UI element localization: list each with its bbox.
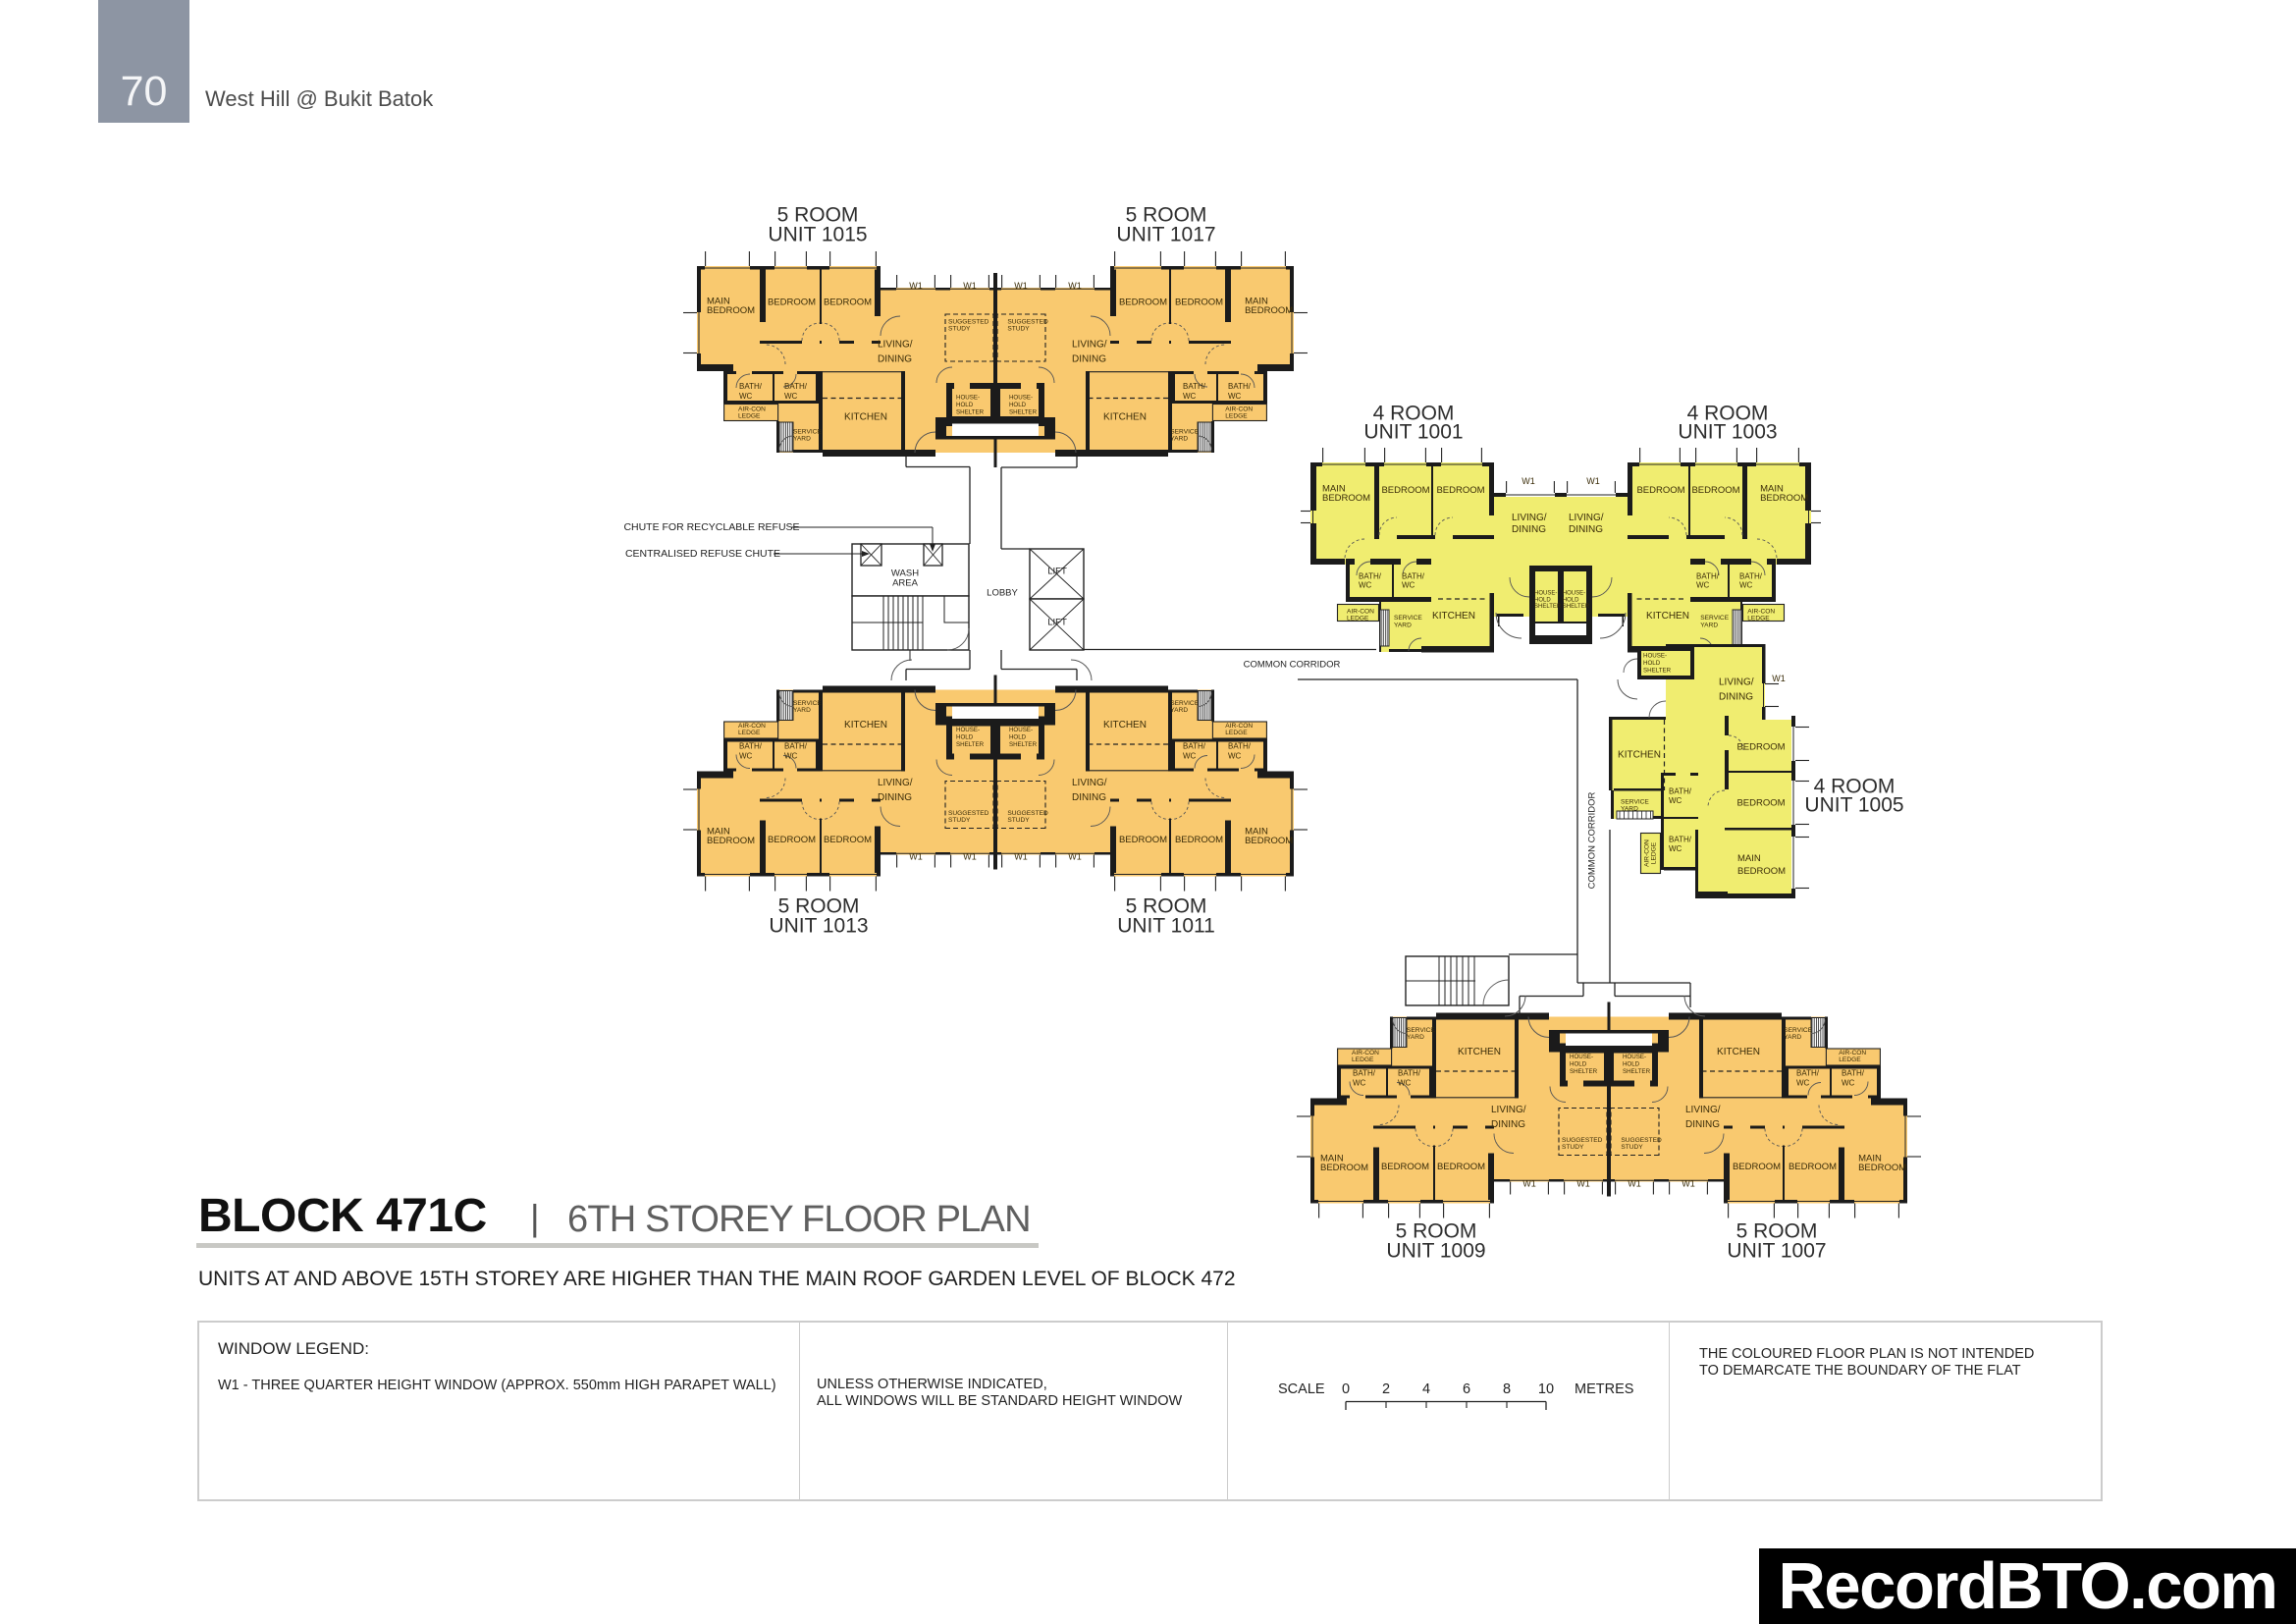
svg-text:WC: WC xyxy=(739,392,753,401)
svg-text:HOUSE-: HOUSE- xyxy=(1643,653,1667,660)
svg-text:AREA: AREA xyxy=(892,578,919,589)
svg-text:HOLD: HOLD xyxy=(1563,597,1579,603)
svg-text:BEDROOM: BEDROOM xyxy=(1381,485,1429,496)
svg-text:BEDROOM: BEDROOM xyxy=(1858,1163,1906,1173)
svg-text:WC: WC xyxy=(1669,844,1682,853)
svg-text:YARD: YARD xyxy=(793,707,811,714)
svg-text:W1: W1 xyxy=(1522,476,1535,486)
svg-text:SUGGESTED: SUGGESTED xyxy=(1562,1137,1603,1144)
svg-text:AIR-CON: AIR-CON xyxy=(1225,406,1253,413)
svg-text:W1: W1 xyxy=(1522,1179,1536,1189)
svg-text:W1: W1 xyxy=(1014,852,1028,862)
svg-text:WC: WC xyxy=(784,392,798,401)
svg-text:LEDGE: LEDGE xyxy=(1225,730,1248,736)
svg-text:DINING: DINING xyxy=(1072,792,1106,803)
svg-text:AIR-CON: AIR-CON xyxy=(1839,1050,1866,1056)
svg-text:BEDROOM: BEDROOM xyxy=(1381,1162,1429,1172)
svg-text:BEDROOM: BEDROOM xyxy=(768,298,816,308)
svg-text:SERVICE: SERVICE xyxy=(1621,799,1649,806)
svg-text:BEDROOM: BEDROOM xyxy=(824,298,872,308)
svg-text:WC: WC xyxy=(1398,1079,1412,1088)
svg-text:W1: W1 xyxy=(1014,281,1028,291)
svg-text:BEDROOM: BEDROOM xyxy=(1175,835,1223,845)
svg-text:WC: WC xyxy=(739,752,753,761)
svg-text:LEDGE: LEDGE xyxy=(1347,616,1369,623)
svg-text:UNIT 1015: UNIT 1015 xyxy=(768,224,867,246)
svg-text:KITCHEN: KITCHEN xyxy=(1717,1047,1760,1057)
svg-text:AIR-CON: AIR-CON xyxy=(1644,839,1651,867)
svg-text:SERVICE: SERVICE xyxy=(793,700,822,707)
svg-text:SUGGESTED: SUGGESTED xyxy=(1007,319,1048,326)
svg-text:SERVICE: SERVICE xyxy=(1170,429,1199,436)
svg-text:BEDROOM: BEDROOM xyxy=(1320,1163,1368,1173)
svg-text:BATH/: BATH/ xyxy=(1696,572,1720,581)
svg-text:LIVING/: LIVING/ xyxy=(1569,513,1604,523)
svg-text:LEDGE: LEDGE xyxy=(738,413,761,420)
svg-text:WC: WC xyxy=(1669,796,1682,805)
svg-text:BATH/: BATH/ xyxy=(1359,572,1382,581)
svg-text:0: 0 xyxy=(1342,1381,1350,1397)
svg-text:BATH/: BATH/ xyxy=(1796,1069,1820,1078)
svg-text:HOUSE-: HOUSE- xyxy=(1623,1054,1646,1060)
svg-text:BEDROOM: BEDROOM xyxy=(768,835,816,845)
svg-text:DINING: DINING xyxy=(1685,1119,1720,1130)
svg-text:BEDROOM: BEDROOM xyxy=(1245,836,1293,846)
svg-text:BATH/: BATH/ xyxy=(1353,1069,1376,1078)
svg-text:BEDROOM: BEDROOM xyxy=(1437,1162,1485,1172)
svg-text:HOLD: HOLD xyxy=(1534,597,1551,603)
svg-text:BATH/: BATH/ xyxy=(1669,836,1692,844)
svg-text:DINING: DINING xyxy=(1491,1119,1525,1130)
svg-text:WC: WC xyxy=(784,752,798,761)
svg-text:LIFT: LIFT xyxy=(1047,618,1067,628)
svg-text:LIVING/: LIVING/ xyxy=(1072,340,1107,351)
svg-text:SERVICE: SERVICE xyxy=(793,429,822,436)
svg-text:CHUTE FOR RECYCLABLE REFUSE: CHUTE FOR RECYCLABLE REFUSE xyxy=(623,521,799,533)
svg-text:YARD: YARD xyxy=(1170,436,1188,443)
svg-text:MAIN: MAIN xyxy=(1737,853,1761,864)
svg-text:W1: W1 xyxy=(1682,1179,1695,1189)
svg-text:HOLD: HOLD xyxy=(956,734,974,741)
svg-text:BATH/: BATH/ xyxy=(1842,1069,1865,1078)
svg-text:LEDGE: LEDGE xyxy=(738,730,761,736)
svg-text:W1: W1 xyxy=(963,852,977,862)
svg-text:WC: WC xyxy=(1696,581,1710,590)
svg-text:WC: WC xyxy=(1739,581,1753,590)
svg-text:CENTRALISED REFUSE CHUTE: CENTRALISED REFUSE CHUTE xyxy=(625,548,780,560)
svg-text:UNIT 1003: UNIT 1003 xyxy=(1678,421,1777,444)
svg-text:W1: W1 xyxy=(1068,281,1082,291)
svg-text:BEDROOM: BEDROOM xyxy=(707,836,755,846)
svg-text:BATH/: BATH/ xyxy=(1398,1069,1421,1078)
svg-text:W1: W1 xyxy=(1628,1179,1641,1189)
svg-text:AIR-CON: AIR-CON xyxy=(738,406,766,413)
svg-text:W1: W1 xyxy=(1068,852,1082,862)
svg-text:LOBBY: LOBBY xyxy=(987,588,1018,599)
svg-text:STUDY: STUDY xyxy=(948,326,971,333)
svg-text:HOUSE-: HOUSE- xyxy=(1563,591,1585,597)
svg-text:YARD: YARD xyxy=(793,436,811,443)
svg-text:WC: WC xyxy=(1402,581,1415,590)
svg-text:8: 8 xyxy=(1503,1381,1511,1397)
svg-text:AIR-CON: AIR-CON xyxy=(1347,609,1374,616)
svg-text:10: 10 xyxy=(1538,1381,1554,1397)
svg-text:6: 6 xyxy=(1463,1381,1470,1397)
svg-text:BEDROOM: BEDROOM xyxy=(1691,485,1739,496)
svg-text:SUGGESTED: SUGGESTED xyxy=(1621,1137,1662,1144)
svg-text:BEDROOM: BEDROOM xyxy=(707,305,755,316)
svg-text:LEDGE: LEDGE xyxy=(1839,1056,1861,1063)
svg-text:BATH/: BATH/ xyxy=(1739,572,1763,581)
svg-text:KITCHEN: KITCHEN xyxy=(1618,750,1661,761)
svg-text:DINING: DINING xyxy=(1569,524,1603,535)
svg-text:HOUSE-: HOUSE- xyxy=(1009,727,1033,733)
svg-text:SERVICE: SERVICE xyxy=(1170,700,1199,707)
svg-text:WC: WC xyxy=(1183,752,1197,761)
svg-text:STUDY: STUDY xyxy=(1007,817,1030,824)
svg-text:LIVING/: LIVING/ xyxy=(878,340,913,351)
svg-text:BATH/: BATH/ xyxy=(1183,742,1206,751)
svg-text:W1: W1 xyxy=(1772,674,1786,683)
svg-text:LIVING/: LIVING/ xyxy=(1719,677,1754,688)
svg-text:BEDROOM: BEDROOM xyxy=(1436,485,1484,496)
svg-text:SUGGESTED: SUGGESTED xyxy=(948,319,989,326)
svg-text:SHELTER: SHELTER xyxy=(1009,741,1038,748)
svg-text:AIR-CON: AIR-CON xyxy=(738,723,766,730)
svg-text:W1: W1 xyxy=(1576,1179,1590,1189)
svg-text:KITCHEN: KITCHEN xyxy=(1432,611,1475,622)
svg-text:BEDROOM: BEDROOM xyxy=(1636,485,1684,496)
svg-text:SERVICE: SERVICE xyxy=(1784,1027,1812,1034)
svg-text:BATH/: BATH/ xyxy=(1402,572,1425,581)
svg-text:LIFT: LIFT xyxy=(1047,567,1067,577)
svg-text:KITCHEN: KITCHEN xyxy=(1103,720,1147,731)
svg-text:KITCHEN: KITCHEN xyxy=(1458,1047,1501,1057)
svg-text:WC: WC xyxy=(1228,392,1242,401)
svg-text:BATH/: BATH/ xyxy=(739,382,763,391)
svg-text:BATH/: BATH/ xyxy=(739,742,763,751)
svg-text:BEDROOM: BEDROOM xyxy=(1322,493,1370,504)
svg-text:W1: W1 xyxy=(963,281,977,291)
svg-text:W1: W1 xyxy=(909,852,923,862)
svg-text:HOLD: HOLD xyxy=(1570,1061,1587,1068)
svg-text:KITCHEN: KITCHEN xyxy=(1646,611,1689,622)
svg-text:LEDGE: LEDGE xyxy=(1225,413,1248,420)
svg-text:AIR-CON: AIR-CON xyxy=(1352,1050,1379,1056)
svg-text:BEDROOM: BEDROOM xyxy=(1789,1162,1837,1172)
svg-text:YARD: YARD xyxy=(1621,806,1638,813)
svg-text:BEDROOM: BEDROOM xyxy=(1119,835,1167,845)
svg-text:WC: WC xyxy=(1183,392,1197,401)
svg-text:LIVING/: LIVING/ xyxy=(1685,1105,1721,1115)
svg-text:4: 4 xyxy=(1422,1381,1430,1397)
svg-text:STUDY: STUDY xyxy=(948,817,971,824)
svg-text:HOUSE-: HOUSE- xyxy=(1570,1054,1593,1060)
svg-text:LEDGE: LEDGE xyxy=(1747,616,1770,623)
svg-text:AIR-CON: AIR-CON xyxy=(1225,723,1253,730)
svg-text:LIVING/: LIVING/ xyxy=(878,778,913,788)
svg-text:WC: WC xyxy=(1353,1079,1366,1088)
svg-text:DINING: DINING xyxy=(878,354,912,365)
svg-text:HOUSE-: HOUSE- xyxy=(956,395,980,402)
svg-text:UNIT 1017: UNIT 1017 xyxy=(1116,224,1215,246)
svg-text:YARD: YARD xyxy=(1784,1034,1801,1041)
svg-text:BATH/: BATH/ xyxy=(784,742,808,751)
svg-text:METRES: METRES xyxy=(1575,1381,1633,1397)
svg-text:YARD: YARD xyxy=(1700,623,1718,629)
svg-text:AIR-CON: AIR-CON xyxy=(1747,609,1775,616)
svg-text:SHELTER: SHELTER xyxy=(1563,604,1590,610)
svg-text:SUGGESTED: SUGGESTED xyxy=(948,810,989,817)
svg-text:LIVING/: LIVING/ xyxy=(1512,513,1547,523)
svg-text:SERVICE: SERVICE xyxy=(1407,1027,1435,1034)
svg-text:BEDROOM: BEDROOM xyxy=(1736,742,1785,753)
svg-text:UNIT 1011: UNIT 1011 xyxy=(1117,915,1215,938)
svg-text:BEDROOM: BEDROOM xyxy=(1245,305,1293,316)
svg-text:YARD: YARD xyxy=(1394,623,1412,629)
svg-text:HOUSE-: HOUSE- xyxy=(956,727,980,733)
svg-text:SHELTER: SHELTER xyxy=(1534,604,1562,610)
svg-text:LIVING/: LIVING/ xyxy=(1491,1105,1526,1115)
svg-text:HOUSE-: HOUSE- xyxy=(1009,395,1033,402)
svg-text:KITCHEN: KITCHEN xyxy=(844,720,887,731)
svg-text:WC: WC xyxy=(1359,581,1372,590)
svg-text:DINING: DINING xyxy=(878,792,912,803)
svg-text:STUDY: STUDY xyxy=(1562,1144,1584,1151)
svg-text:SERVICE: SERVICE xyxy=(1700,615,1729,622)
svg-text:LIVING/: LIVING/ xyxy=(1072,778,1107,788)
svg-text:HOLD: HOLD xyxy=(956,402,974,408)
svg-text:BEDROOM: BEDROOM xyxy=(1737,866,1786,877)
svg-text:LEDGE: LEDGE xyxy=(1651,841,1658,864)
svg-text:DINING: DINING xyxy=(1719,692,1753,703)
svg-text:STUDY: STUDY xyxy=(1621,1144,1643,1151)
svg-text:BEDROOM: BEDROOM xyxy=(1736,798,1785,809)
svg-text:WC: WC xyxy=(1228,752,1242,761)
svg-text:WC: WC xyxy=(1842,1079,1855,1088)
svg-text:HOLD: HOLD xyxy=(1009,402,1027,408)
svg-text:BATH/: BATH/ xyxy=(1228,742,1252,751)
svg-text:HOLD: HOLD xyxy=(1643,660,1661,667)
svg-text:HOUSE-: HOUSE- xyxy=(1534,591,1557,597)
svg-text:W1: W1 xyxy=(1586,476,1600,486)
svg-text:UNIT 1001: UNIT 1001 xyxy=(1363,421,1463,444)
svg-text:WC: WC xyxy=(1796,1079,1810,1088)
svg-text:YARD: YARD xyxy=(1407,1034,1424,1041)
svg-text:BEDROOM: BEDROOM xyxy=(1760,493,1808,504)
svg-text:DINING: DINING xyxy=(1072,354,1106,365)
svg-text:SHELTER: SHELTER xyxy=(1623,1068,1651,1075)
svg-text:KITCHEN: KITCHEN xyxy=(1103,412,1147,423)
svg-text:STUDY: STUDY xyxy=(1007,326,1030,333)
svg-text:BATH/: BATH/ xyxy=(784,382,808,391)
svg-text:2: 2 xyxy=(1382,1381,1390,1397)
svg-text:SHELTER: SHELTER xyxy=(1643,668,1672,675)
svg-text:UNIT 1007: UNIT 1007 xyxy=(1727,1240,1826,1263)
svg-text:BATH/: BATH/ xyxy=(1183,382,1206,391)
svg-text:BEDROOM: BEDROOM xyxy=(1733,1162,1781,1172)
svg-text:BEDROOM: BEDROOM xyxy=(1175,298,1223,308)
svg-text:SUGGESTED: SUGGESTED xyxy=(1007,810,1048,817)
svg-text:SHELTER: SHELTER xyxy=(1009,409,1038,416)
svg-text:SCALE: SCALE xyxy=(1278,1381,1325,1397)
svg-text:BATH/: BATH/ xyxy=(1669,787,1692,796)
svg-text:BEDROOM: BEDROOM xyxy=(1119,298,1167,308)
svg-text:SHELTER: SHELTER xyxy=(956,741,985,748)
svg-text:SHELTER: SHELTER xyxy=(1570,1068,1598,1075)
svg-text:BATH/: BATH/ xyxy=(1228,382,1252,391)
svg-text:UNIT 1009: UNIT 1009 xyxy=(1386,1240,1485,1263)
svg-text:YARD: YARD xyxy=(1170,707,1188,714)
svg-text:SERVICE: SERVICE xyxy=(1394,615,1422,622)
svg-text:SHELTER: SHELTER xyxy=(956,409,985,416)
svg-text:COMMON CORRIDOR: COMMON CORRIDOR xyxy=(1587,792,1598,890)
svg-text:COMMON CORRIDOR: COMMON CORRIDOR xyxy=(1244,660,1341,671)
svg-text:LEDGE: LEDGE xyxy=(1352,1056,1374,1063)
svg-text:UNIT 1005: UNIT 1005 xyxy=(1804,794,1903,817)
svg-text:UNIT 1013: UNIT 1013 xyxy=(769,915,868,938)
svg-text:DINING: DINING xyxy=(1512,524,1546,535)
svg-text:KITCHEN: KITCHEN xyxy=(844,412,887,423)
svg-text:W1: W1 xyxy=(909,281,923,291)
svg-text:BEDROOM: BEDROOM xyxy=(824,835,872,845)
svg-text:HOLD: HOLD xyxy=(1623,1061,1640,1068)
svg-text:HOLD: HOLD xyxy=(1009,734,1027,741)
